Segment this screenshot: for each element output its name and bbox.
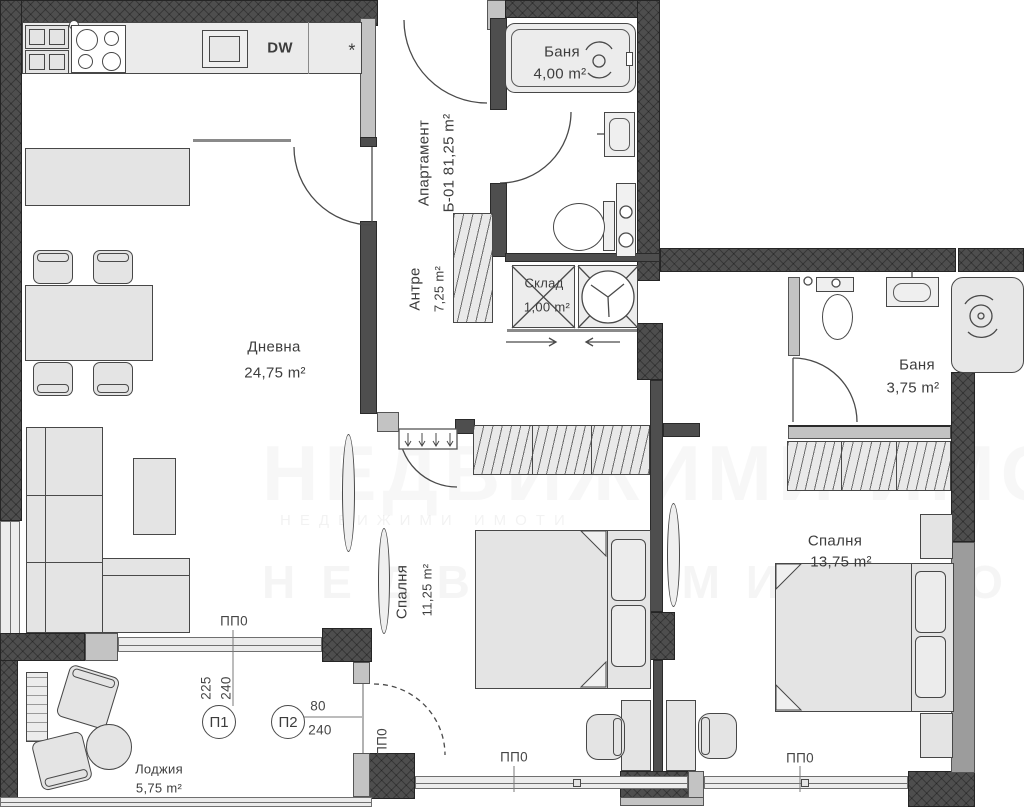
wall-segment xyxy=(85,633,118,661)
room-label-hall-area: 7,25 m² xyxy=(432,266,447,312)
room-label-bedroom1-name: Спалня xyxy=(394,565,411,619)
wall-segment xyxy=(620,797,704,806)
flow-arrow-right xyxy=(506,338,556,346)
dining-chair xyxy=(33,362,73,396)
wall-segment xyxy=(958,248,1024,272)
wardrobe-divider xyxy=(591,425,592,475)
room-label-bedroom1-area: 11,25 m² xyxy=(420,564,435,617)
wardrobe-divider xyxy=(841,441,842,491)
bedroom2-wardrobe xyxy=(787,441,951,491)
counter-divider xyxy=(308,22,309,74)
window xyxy=(415,776,688,789)
loggia-armchair xyxy=(55,664,121,731)
sink-bowl xyxy=(29,29,45,45)
wall-segment xyxy=(360,137,377,147)
wall-segment xyxy=(688,771,704,798)
window-mark-pp0-balcony: ПП0 xyxy=(375,728,390,756)
loggia-parapet xyxy=(0,797,372,807)
floor-plan: НЕДВИЖИМИ ИМОТИ НЕДВИЖИМИ ИМОТИ НЕДВИЖИМ… xyxy=(0,0,1024,807)
wall-segment xyxy=(505,0,639,18)
wall-segment xyxy=(507,329,657,332)
apartment-code: Б-01 81,25 m² xyxy=(441,114,458,213)
room-label-storage-name: Склад xyxy=(524,276,563,291)
p1-height: 240 xyxy=(219,676,234,699)
kitchen-island xyxy=(25,148,190,206)
loggia-armchair xyxy=(31,730,94,791)
door-mark-p2: П2 xyxy=(271,705,305,739)
kitchen-soffit-line xyxy=(193,139,291,142)
sofa-cushion-line xyxy=(102,575,190,576)
window-mark-pp0-bedroom2: ПП0 xyxy=(786,751,814,766)
desk-chair xyxy=(698,713,737,759)
wall-segment xyxy=(663,423,700,437)
pillow xyxy=(611,539,646,601)
wall-segment xyxy=(360,18,376,140)
wall-segment xyxy=(505,253,660,262)
room-label-bath1-name: Баня xyxy=(544,44,580,61)
wall-segment xyxy=(455,419,475,434)
loggia-bench xyxy=(26,672,48,742)
door-arc-bath2 xyxy=(793,358,857,422)
nightstand xyxy=(920,514,953,559)
room-label-living-area: 24,75 m² xyxy=(244,365,306,382)
p1-width: 225 xyxy=(199,676,214,699)
wall-segment xyxy=(951,372,975,542)
counter-star-symbol: * xyxy=(348,41,355,62)
sink-bowl xyxy=(29,54,45,70)
p2-width: 80 xyxy=(310,699,326,714)
window-mullion xyxy=(573,779,581,787)
sofa-cushion-line xyxy=(26,495,103,496)
wall-segment xyxy=(788,425,951,439)
dining-table xyxy=(25,285,153,361)
radiator xyxy=(378,528,390,634)
wall-segment xyxy=(637,0,660,281)
bed-headboard-line xyxy=(911,563,912,712)
nightstand xyxy=(920,713,953,758)
dining-chair xyxy=(93,250,133,284)
room-label-bedroom2-name: Спалня xyxy=(808,533,862,550)
door-arc-bath1 xyxy=(500,112,571,183)
wall-segment xyxy=(650,380,663,612)
door-arc-hall xyxy=(294,147,372,225)
wall-segment xyxy=(360,221,377,414)
wall-segment xyxy=(353,753,370,797)
loggia-round-table xyxy=(86,724,132,770)
bathroom-sink-basin xyxy=(609,118,630,151)
room-label-living-name: Дневна xyxy=(247,339,300,356)
room-label-bedroom2-area: 13,75 m² xyxy=(810,554,872,571)
watermark-row-small: НЕДВИЖИМИ ИМОТИ xyxy=(280,512,574,529)
bath-cabinet xyxy=(616,183,636,257)
toilet2-tank xyxy=(816,277,854,292)
wardrobe-divider xyxy=(532,425,533,475)
wall-segment xyxy=(660,248,956,272)
wall-segment xyxy=(951,542,975,773)
pillow xyxy=(915,571,946,633)
pillow xyxy=(611,605,646,667)
room-label-storage-area: 1,00 m² xyxy=(524,300,570,315)
p1-id: П1 xyxy=(209,714,228,731)
window xyxy=(118,637,322,652)
room-label-loggia-area: 5,75 m² xyxy=(136,781,182,796)
coffee-table xyxy=(133,458,176,535)
burner xyxy=(78,54,93,69)
sofa-cushion-line xyxy=(45,427,46,633)
sink-bowl xyxy=(49,29,65,45)
window-mullion xyxy=(801,779,809,787)
room-label-bath2-name: Баня xyxy=(899,357,935,374)
storage-box xyxy=(512,265,575,328)
apartment-label: Апартамент xyxy=(416,120,433,206)
burner xyxy=(104,31,119,46)
bedroom1-wardrobe xyxy=(473,425,650,475)
room-label-bath2-area: 3,75 m² xyxy=(887,380,940,397)
bathtub-fitting xyxy=(626,52,633,66)
bath2-accessory xyxy=(804,277,812,285)
window xyxy=(0,521,20,635)
p2-height: 240 xyxy=(308,723,331,738)
wall-segment xyxy=(377,412,399,432)
desk xyxy=(621,700,651,771)
desk-chair xyxy=(586,714,625,760)
bed-headboard-line xyxy=(607,530,608,689)
door-arc-entrance xyxy=(404,20,487,103)
toilet2-bowl xyxy=(822,294,853,340)
sink-bowl xyxy=(49,54,65,70)
radiator xyxy=(667,503,680,607)
wall-segment xyxy=(637,323,663,380)
burner xyxy=(76,29,98,51)
shower-tray xyxy=(951,277,1024,373)
bathroom2-sink-basin xyxy=(893,283,931,302)
sofa-cushion-line xyxy=(26,562,103,563)
door-leaf-ticks xyxy=(405,433,453,446)
room-label-bath1-area: 4,00 m² xyxy=(534,66,587,83)
washing-machine-box xyxy=(578,265,638,328)
wall-segment xyxy=(0,633,85,661)
door-mark-p1: П1 xyxy=(202,705,236,739)
dishwasher-label: DW xyxy=(267,40,293,57)
oven-appliance-inner xyxy=(209,36,240,62)
burner xyxy=(102,52,121,71)
window-mark-pp0-bedroom1: ПП0 xyxy=(500,750,528,765)
sofa-vertical xyxy=(26,427,103,633)
radiator xyxy=(342,434,355,552)
room-label-hall-name: Антре xyxy=(407,267,424,310)
dining-chair xyxy=(33,250,73,284)
wall-segment xyxy=(788,277,800,356)
dining-chair xyxy=(93,362,133,396)
wardrobe-divider xyxy=(896,441,897,491)
desk xyxy=(666,700,696,771)
wall-segment xyxy=(653,660,663,774)
wall-segment xyxy=(322,628,372,662)
room-label-loggia-name: Лоджия xyxy=(135,762,183,777)
window-mark-pp0: ПП0 xyxy=(220,614,248,629)
wall-segment xyxy=(0,0,22,521)
p2-id: П2 xyxy=(278,714,297,731)
wall-segment xyxy=(908,771,975,807)
hall-wardrobe xyxy=(453,213,493,323)
flow-arrow-left xyxy=(586,338,620,346)
toilet-bowl xyxy=(553,203,605,251)
door-arc-bedroom1 xyxy=(399,429,457,487)
wall-segment xyxy=(353,662,370,684)
pillow xyxy=(915,636,946,698)
sofa-horizontal xyxy=(102,558,190,633)
bedroom1-door-leaf xyxy=(399,429,457,449)
